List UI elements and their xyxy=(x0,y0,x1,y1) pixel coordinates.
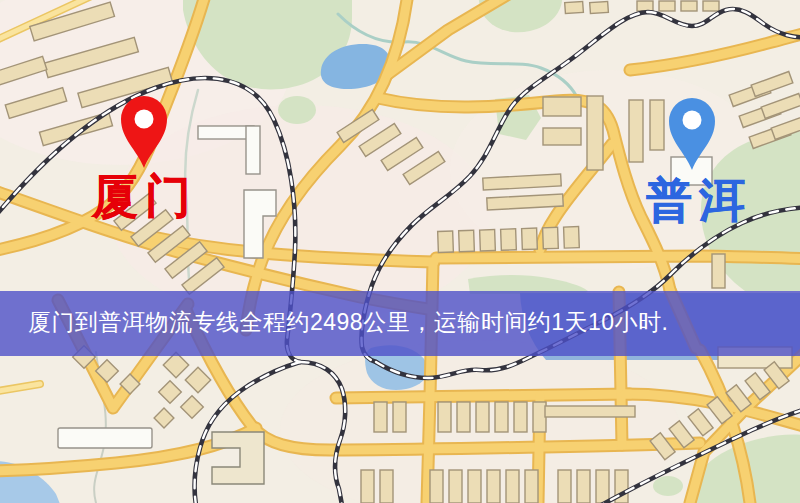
destination-pin xyxy=(666,98,718,172)
route-info-banner: 厦门到普洱物流专线全程约2498公里，运输时间约1天10小时. xyxy=(0,291,800,356)
origin-label: 厦门 xyxy=(92,174,198,220)
map-background xyxy=(0,0,800,503)
map-pin-icon xyxy=(666,98,718,172)
map-pin-icon xyxy=(118,96,170,170)
route-map-image: 厦门 普洱 厦门到普洱物流专线全程约2498公里，运输时间约1天10小时. xyxy=(0,0,800,503)
destination-label: 普洱 xyxy=(646,178,752,224)
route-info-text: 厦门到普洱物流专线全程约2498公里，运输时间约1天10小时. xyxy=(28,307,668,338)
origin-pin xyxy=(118,96,170,170)
